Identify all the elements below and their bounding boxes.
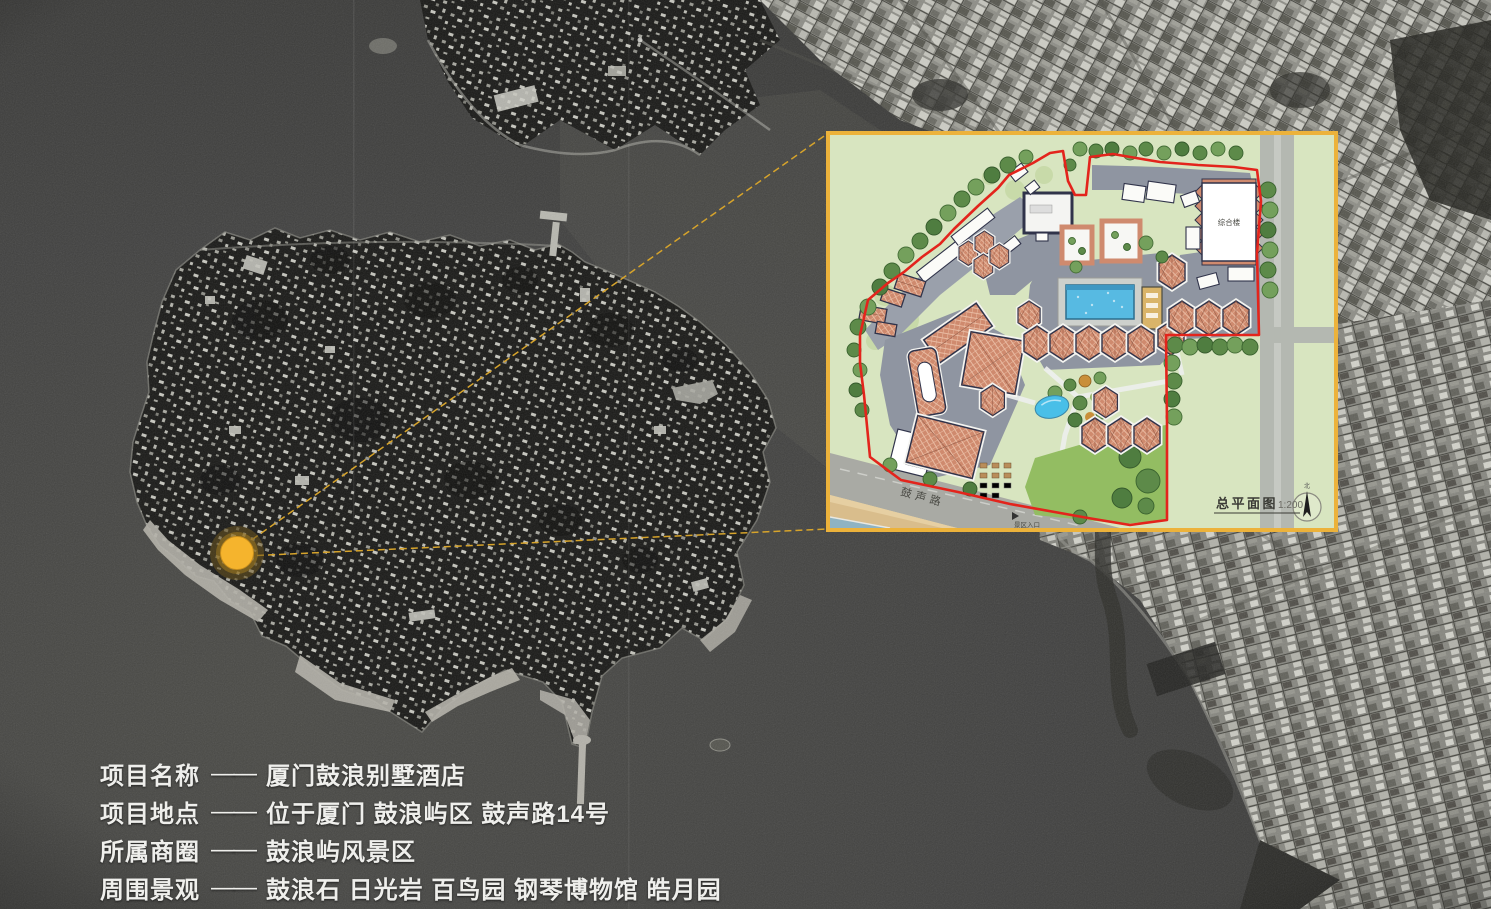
courtyard-building-b <box>1100 219 1142 263</box>
plan-scale: 1:200 <box>1278 500 1303 511</box>
hex-villa <box>981 385 1004 416</box>
project-info-panel: 项目名称 —— 厦门鼓浪别墅酒店 项目地点 —— 位于厦门 鼓浪屿区 鼓声路14… <box>100 760 722 901</box>
location-marker <box>210 526 264 580</box>
info-row-business-district: 所属商圈 —— 鼓浪屿风景区 <box>100 836 722 863</box>
info-label: 项目名称 <box>100 756 200 791</box>
white-buildings-ne <box>1122 181 1176 203</box>
main-building: 综合楼 <box>1195 179 1263 265</box>
site-plan-inset: 鼓声路 <box>826 131 1338 532</box>
info-value: 鼓浪石 日光岩 百鸟园 钢琴博物馆 皓月园 <box>266 870 722 905</box>
north-label: 北 <box>1304 482 1310 490</box>
main-building-label: 综合楼 <box>1218 217 1241 227</box>
service-building <box>1142 287 1162 329</box>
info-row-project-name: 项目名称 —— 厦门鼓浪别墅酒店 <box>100 760 722 787</box>
site-plan-drawing: 鼓声路 <box>830 135 1334 528</box>
info-dash: —— <box>211 760 255 788</box>
info-dash: —— <box>211 836 255 864</box>
info-value: 位于厦门 鼓浪屿区 鼓声路14号 <box>266 794 610 829</box>
info-value: 厦门鼓浪别墅酒店 <box>266 756 466 791</box>
info-dash: —— <box>211 798 255 826</box>
info-label: 项目地点 <box>100 794 200 829</box>
info-label: 所属商圈 <box>100 832 200 867</box>
info-value: 鼓浪屿风景区 <box>266 832 416 867</box>
info-row-location: 项目地点 —— 位于厦门 鼓浪屿区 鼓声路14号 <box>100 798 722 825</box>
swimming-pool <box>1058 278 1142 326</box>
plan-title: 总平面图 <box>1216 496 1278 511</box>
entrance-label: 景区入口 <box>1014 521 1040 528</box>
slide: 鼓声路 <box>0 0 1491 909</box>
info-dash: —— <box>211 874 255 902</box>
info-label: 周围景观 <box>100 870 200 905</box>
info-row-surroundings: 周围景观 —— 鼓浪石 日光岩 百鸟园 钢琴博物馆 皓月园 <box>100 874 722 901</box>
courtyard-building-a <box>1060 225 1094 265</box>
